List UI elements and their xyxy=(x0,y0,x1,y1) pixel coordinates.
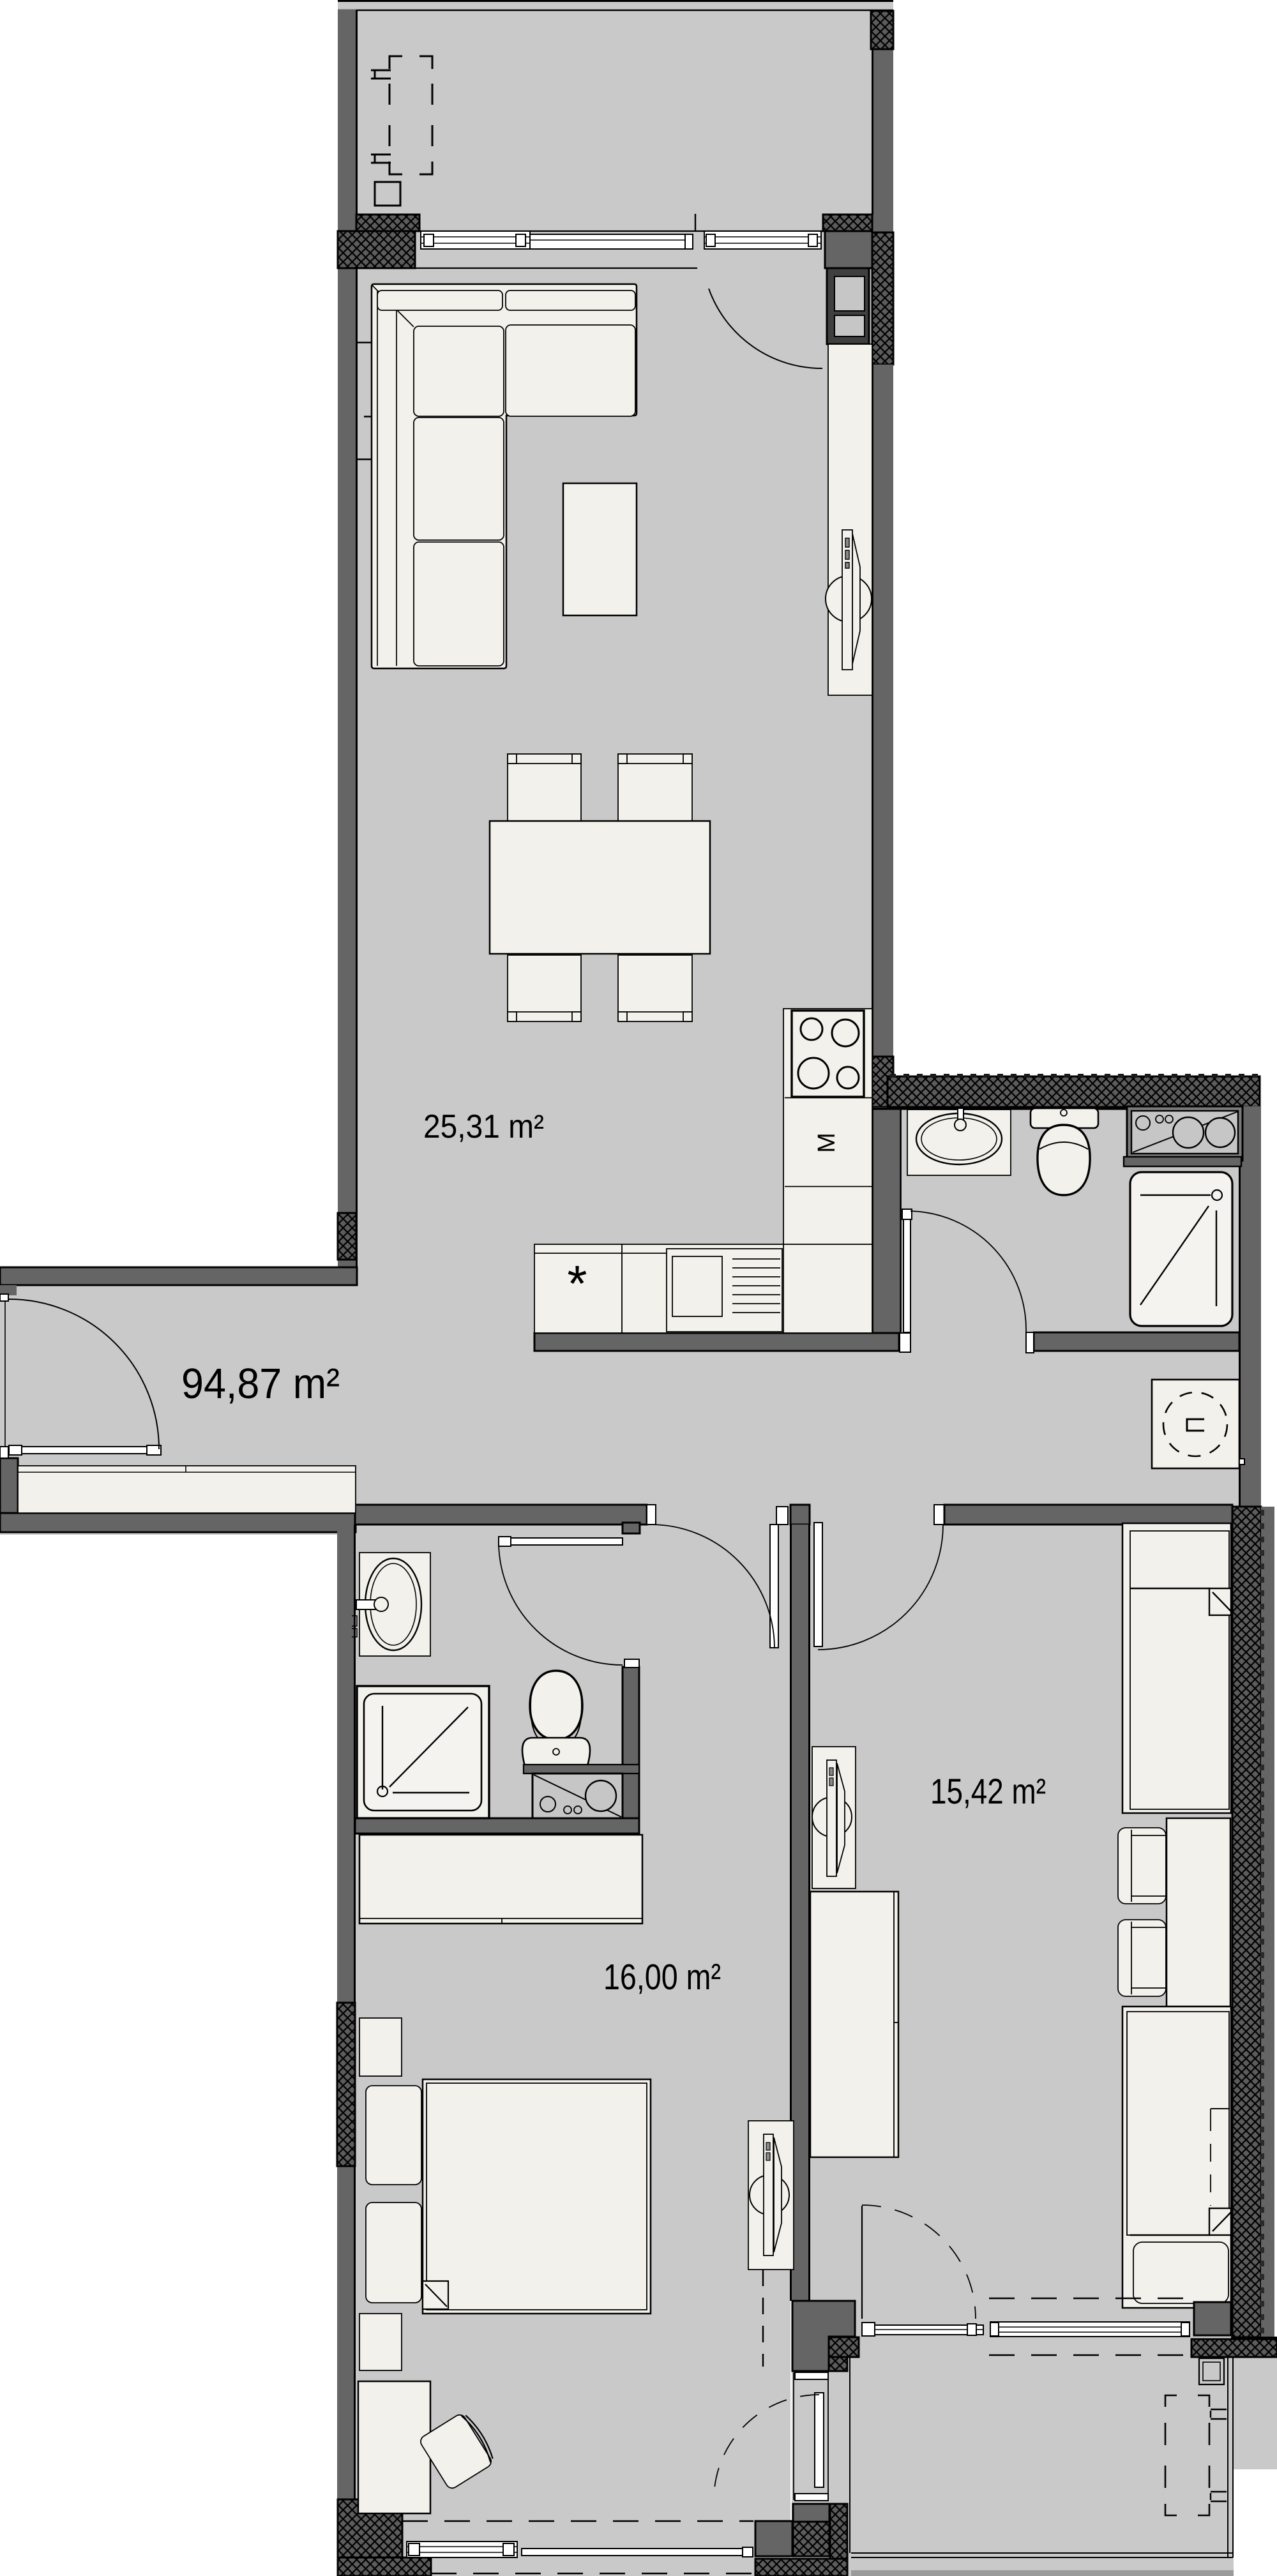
svg-text:15,42 m²: 15,42 m² xyxy=(930,1771,1046,1811)
svg-text:16,00 m²: 16,00 m² xyxy=(603,1957,721,1998)
svg-text:94,87 m²: 94,87 m² xyxy=(181,1360,340,1408)
svg-text:*: * xyxy=(567,1255,587,1312)
svg-text:M: M xyxy=(813,1133,840,1153)
svg-text:25,31 m²: 25,31 m² xyxy=(423,1108,544,1145)
